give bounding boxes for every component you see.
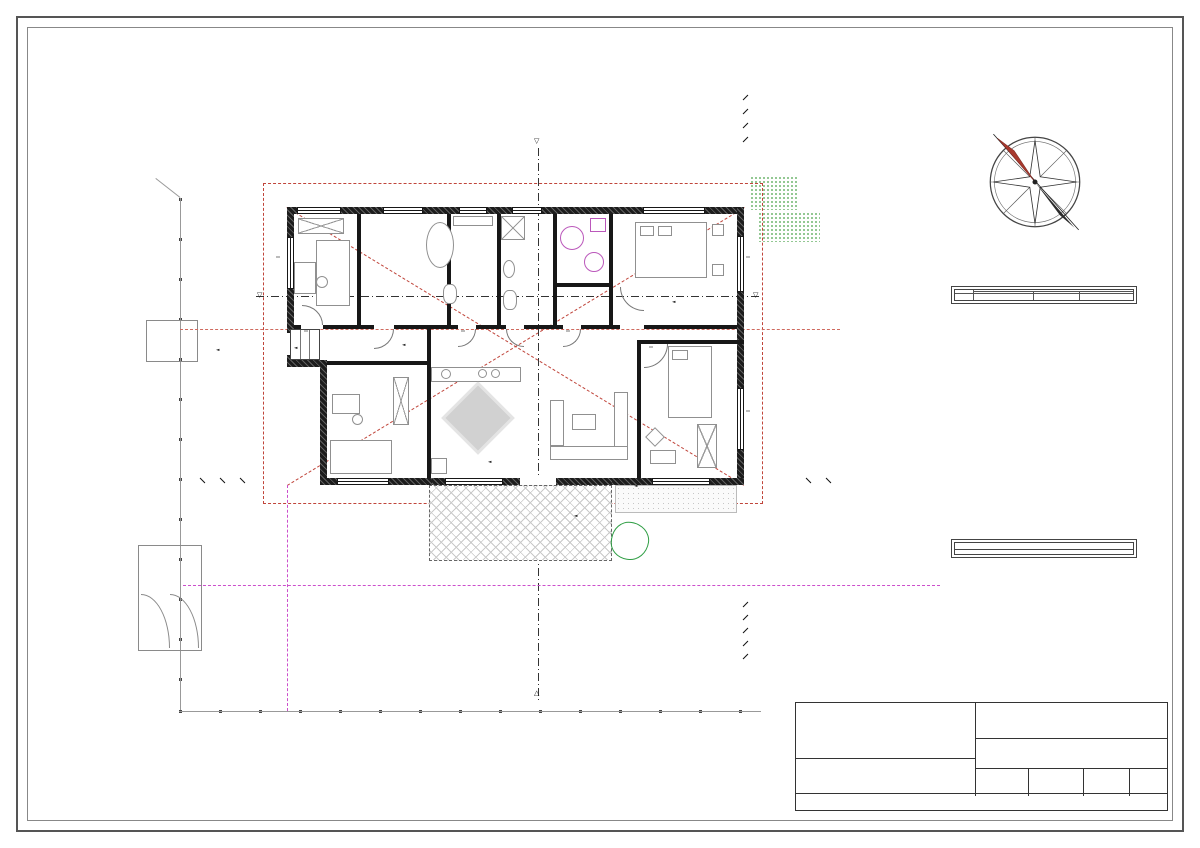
fixture-toilet [443,284,457,304]
drawing-id-label [1130,769,1167,771]
wall-partition [357,214,361,325]
window [459,207,487,214]
fixture-bathtub [426,222,454,268]
drawing-label [1084,769,1129,771]
dimension-chain-bottom [283,649,745,657]
stove-burner [478,369,487,378]
furniture-desk [650,450,676,464]
total-label [974,294,1034,301]
window [737,236,744,292]
window [652,478,710,485]
section-marker-b-right-icon: ▽ [753,291,758,299]
furniture-pillow [640,226,654,236]
dimension-chain-top [283,90,745,98]
window [643,207,705,214]
door-size-label [304,330,308,332]
designer-cell [796,759,976,796]
level-marker [634,483,637,489]
project-name-label [976,703,1167,705]
level-marker [402,342,405,348]
window [737,388,744,450]
materials-legend [951,539,1137,558]
dimension-chain-right [800,207,808,480]
furniture-desk [332,394,360,414]
table-total-row [955,294,1133,301]
furniture-wardrobe [697,424,717,468]
furniture-chair [352,414,363,425]
green-hatch-area [750,176,798,210]
furniture-sofa [550,446,628,460]
date-cell [976,769,1028,796]
window-size-label [746,410,750,412]
fixture-equipment [590,218,606,232]
fridge [431,458,447,474]
site-label [976,739,1167,741]
title-block [795,702,1168,811]
copyright-note [796,793,1167,810]
terrace-area [429,485,612,561]
dimension-chain-left [194,207,202,480]
furniture-shelf [453,216,493,226]
total-value [1033,294,1079,301]
furniture-wardrobe [298,218,344,234]
dimension-chain-bottom [283,610,745,618]
window [297,207,341,214]
client-cell [796,703,976,759]
furniture-nightstand [712,264,724,276]
drawing-cell [1083,769,1129,796]
project-name-cell [976,703,1167,739]
room-schedule [951,286,1137,304]
dimension-chain-right [820,207,828,480]
section-marker-b-left-icon: ▽ [257,291,262,299]
window [512,207,542,214]
furniture-desk [294,262,316,294]
furniture-pillow [658,226,672,236]
window-slider [445,478,503,485]
wall-et [553,283,613,287]
kitchen-sink [441,369,451,379]
furniture-coffee-table [572,414,596,430]
furniture-pillow [672,350,688,360]
fixture-washer [584,252,604,272]
dimension-chain-top [283,104,745,112]
furniture-bed [330,440,392,474]
compass-rose-icon [983,130,1087,234]
drawing-sheet: ▽ △ ▽ ▽ [0,0,1200,848]
date-label [976,769,1028,771]
side-setback-line [183,585,940,586]
drawing-id-cell [1129,769,1167,796]
door-opening [620,325,644,329]
fixture-sink [503,260,515,278]
scale-cell [1028,769,1083,796]
terrace-door-opening [520,478,556,485]
wall-partition [609,214,613,325]
wall-szelfogo-right [427,325,431,365]
dimension-chain-left [214,207,222,480]
wall-szoba4-left [637,340,641,478]
section-marker-a-bottom-icon: △ [534,689,539,697]
window-size-label [746,256,750,258]
client-label [796,703,975,705]
door-size-label [649,346,653,348]
designer-label [796,759,975,761]
wall-szoba2-top [327,361,431,365]
wall-partition [553,214,557,325]
dimension-chain-bottom [283,597,745,605]
dimension-chain-top [283,132,745,140]
level-marker [672,299,675,305]
dimension-chain-top [283,118,745,126]
fixture-shower [501,216,525,240]
level-marker [294,345,297,351]
fixture-boiler [560,226,584,250]
level-marker [488,459,491,465]
walkway-area [615,485,737,513]
neighbour-structure [146,320,198,362]
scale-label [1029,769,1083,771]
level-marker [574,513,577,519]
dimension-chain-bottom [283,623,745,631]
green-hatch-area [758,212,820,242]
window [287,237,294,289]
furniture-sofa [550,400,564,446]
wall-exterior-left-lower [320,360,327,485]
door-size-label [566,330,570,332]
window [383,207,423,214]
furniture-chair [316,276,328,288]
plot-boundary-bottom [179,710,761,713]
site-cell [976,739,1167,769]
dimension-chain-bottom [283,636,745,644]
legend-title [955,543,1133,550]
window [337,478,389,485]
stove-burner [491,369,500,378]
dimension-chain-left [234,207,242,480]
door-size-label [461,330,465,332]
furniture-wardrobe [393,377,409,425]
furniture-nightstand [712,224,724,236]
furniture-bed [316,240,350,306]
fixture-toilet [503,290,517,310]
window-size-label [276,256,280,258]
